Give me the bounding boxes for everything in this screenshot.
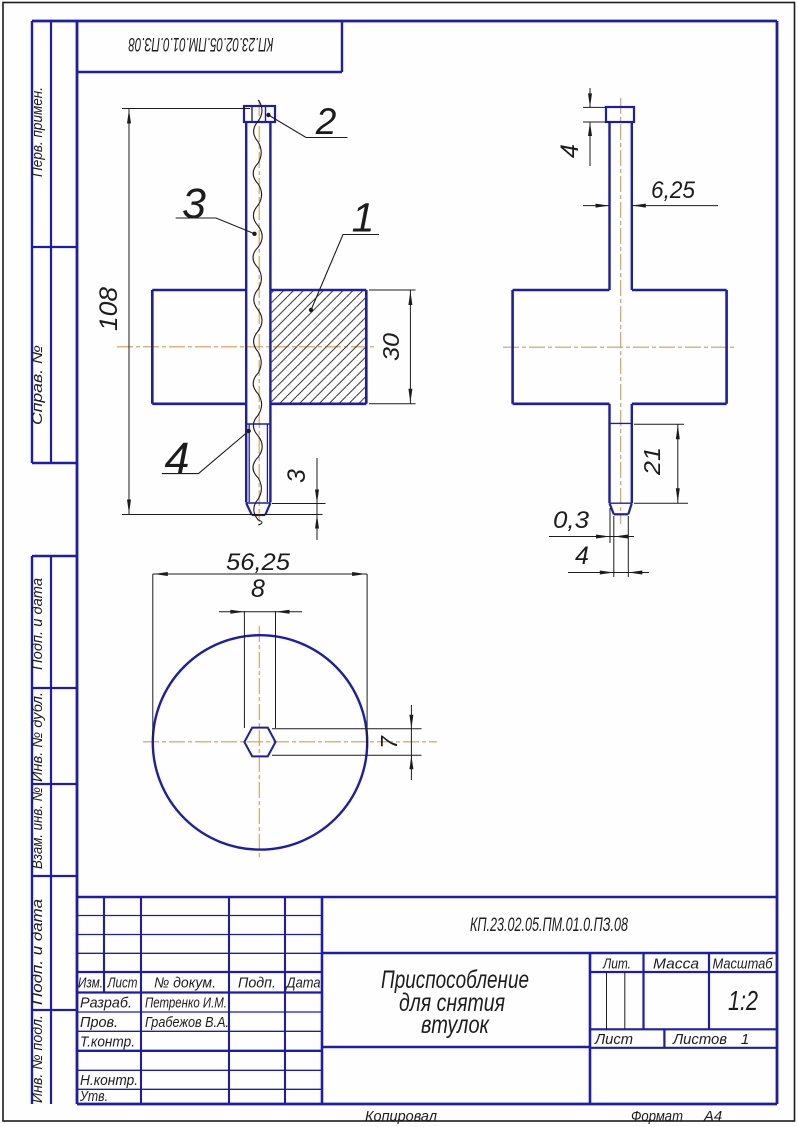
svg-text:Грабежов В.А.: Грабежов В.А. [145, 1015, 229, 1031]
svg-text:Взам. инв. №: Взам. инв. № [30, 787, 46, 869]
svg-text:56,25: 56,25 [226, 549, 291, 576]
svg-text:Лист: Лист [594, 1031, 633, 1048]
svg-text:1: 1 [741, 1031, 749, 1048]
svg-text:А4: А4 [703, 1108, 722, 1125]
svg-text:Листов: Листов [672, 1031, 727, 1048]
svg-text:№ докум.: № докум. [154, 976, 216, 992]
svg-text:Подп. и дата: Подп. и дата [30, 899, 46, 1005]
svg-text:3: 3 [283, 469, 311, 483]
svg-text:30: 30 [378, 333, 404, 361]
svg-text:Утв.: Утв. [79, 1089, 108, 1105]
svg-text:Лит.: Лит. [602, 957, 631, 973]
svg-text:Инв. № подл.: Инв. № подл. [30, 1015, 46, 1103]
svg-text:Н.контр.: Н.контр. [80, 1073, 138, 1089]
svg-text:0,3: 0,3 [553, 507, 590, 534]
svg-text:Лист: Лист [107, 976, 138, 992]
svg-text:3: 3 [182, 180, 206, 228]
svg-text:Формат: Формат [631, 1108, 683, 1125]
svg-text:7: 7 [376, 735, 402, 749]
svg-text:Разраб.: Разраб. [80, 996, 132, 1012]
svg-text:Подп. и дата: Подп. и дата [30, 578, 46, 670]
svg-text:Пров.: Пров. [80, 1015, 118, 1031]
svg-text:4: 4 [556, 144, 584, 158]
svg-text:1: 1 [352, 195, 375, 241]
svg-text:Масса: Масса [653, 957, 699, 973]
svg-text:КП.23.02.05.ПМ.01.0.ПЗ.08: КП.23.02.05.ПМ.01.0.ПЗ.08 [128, 33, 273, 54]
svg-text:Петренко И.М.: Петренко И.М. [145, 996, 227, 1012]
svg-text:КП.23.02.05.ПМ.01.0.ПЗ.08: КП.23.02.05.ПМ.01.0.ПЗ.08 [470, 915, 628, 936]
svg-text:2: 2 [315, 101, 337, 142]
svg-text:8: 8 [251, 575, 265, 603]
svg-text:4: 4 [575, 542, 589, 570]
svg-text:Т.контр.: Т.контр. [80, 1034, 135, 1050]
svg-text:Перв. примен.: Перв. примен. [30, 87, 46, 177]
svg-text:втулок: втулок [421, 1011, 490, 1039]
svg-text:4: 4 [164, 433, 189, 484]
svg-text:1:2: 1:2 [728, 985, 758, 1016]
svg-text:Масштаб: Масштаб [713, 957, 774, 973]
svg-text:Дата: Дата [285, 976, 321, 992]
svg-text:Подп.: Подп. [238, 976, 276, 992]
svg-text:Инв. № дубл.: Инв. № дубл. [30, 692, 46, 782]
svg-text:21: 21 [639, 447, 665, 476]
svg-text:108: 108 [95, 287, 123, 331]
svg-text:Копировал: Копировал [365, 1108, 438, 1125]
svg-text:6,25: 6,25 [651, 177, 696, 204]
svg-text:Справ. №: Справ. № [30, 345, 46, 425]
svg-text:Изм.: Изм. [78, 976, 103, 992]
